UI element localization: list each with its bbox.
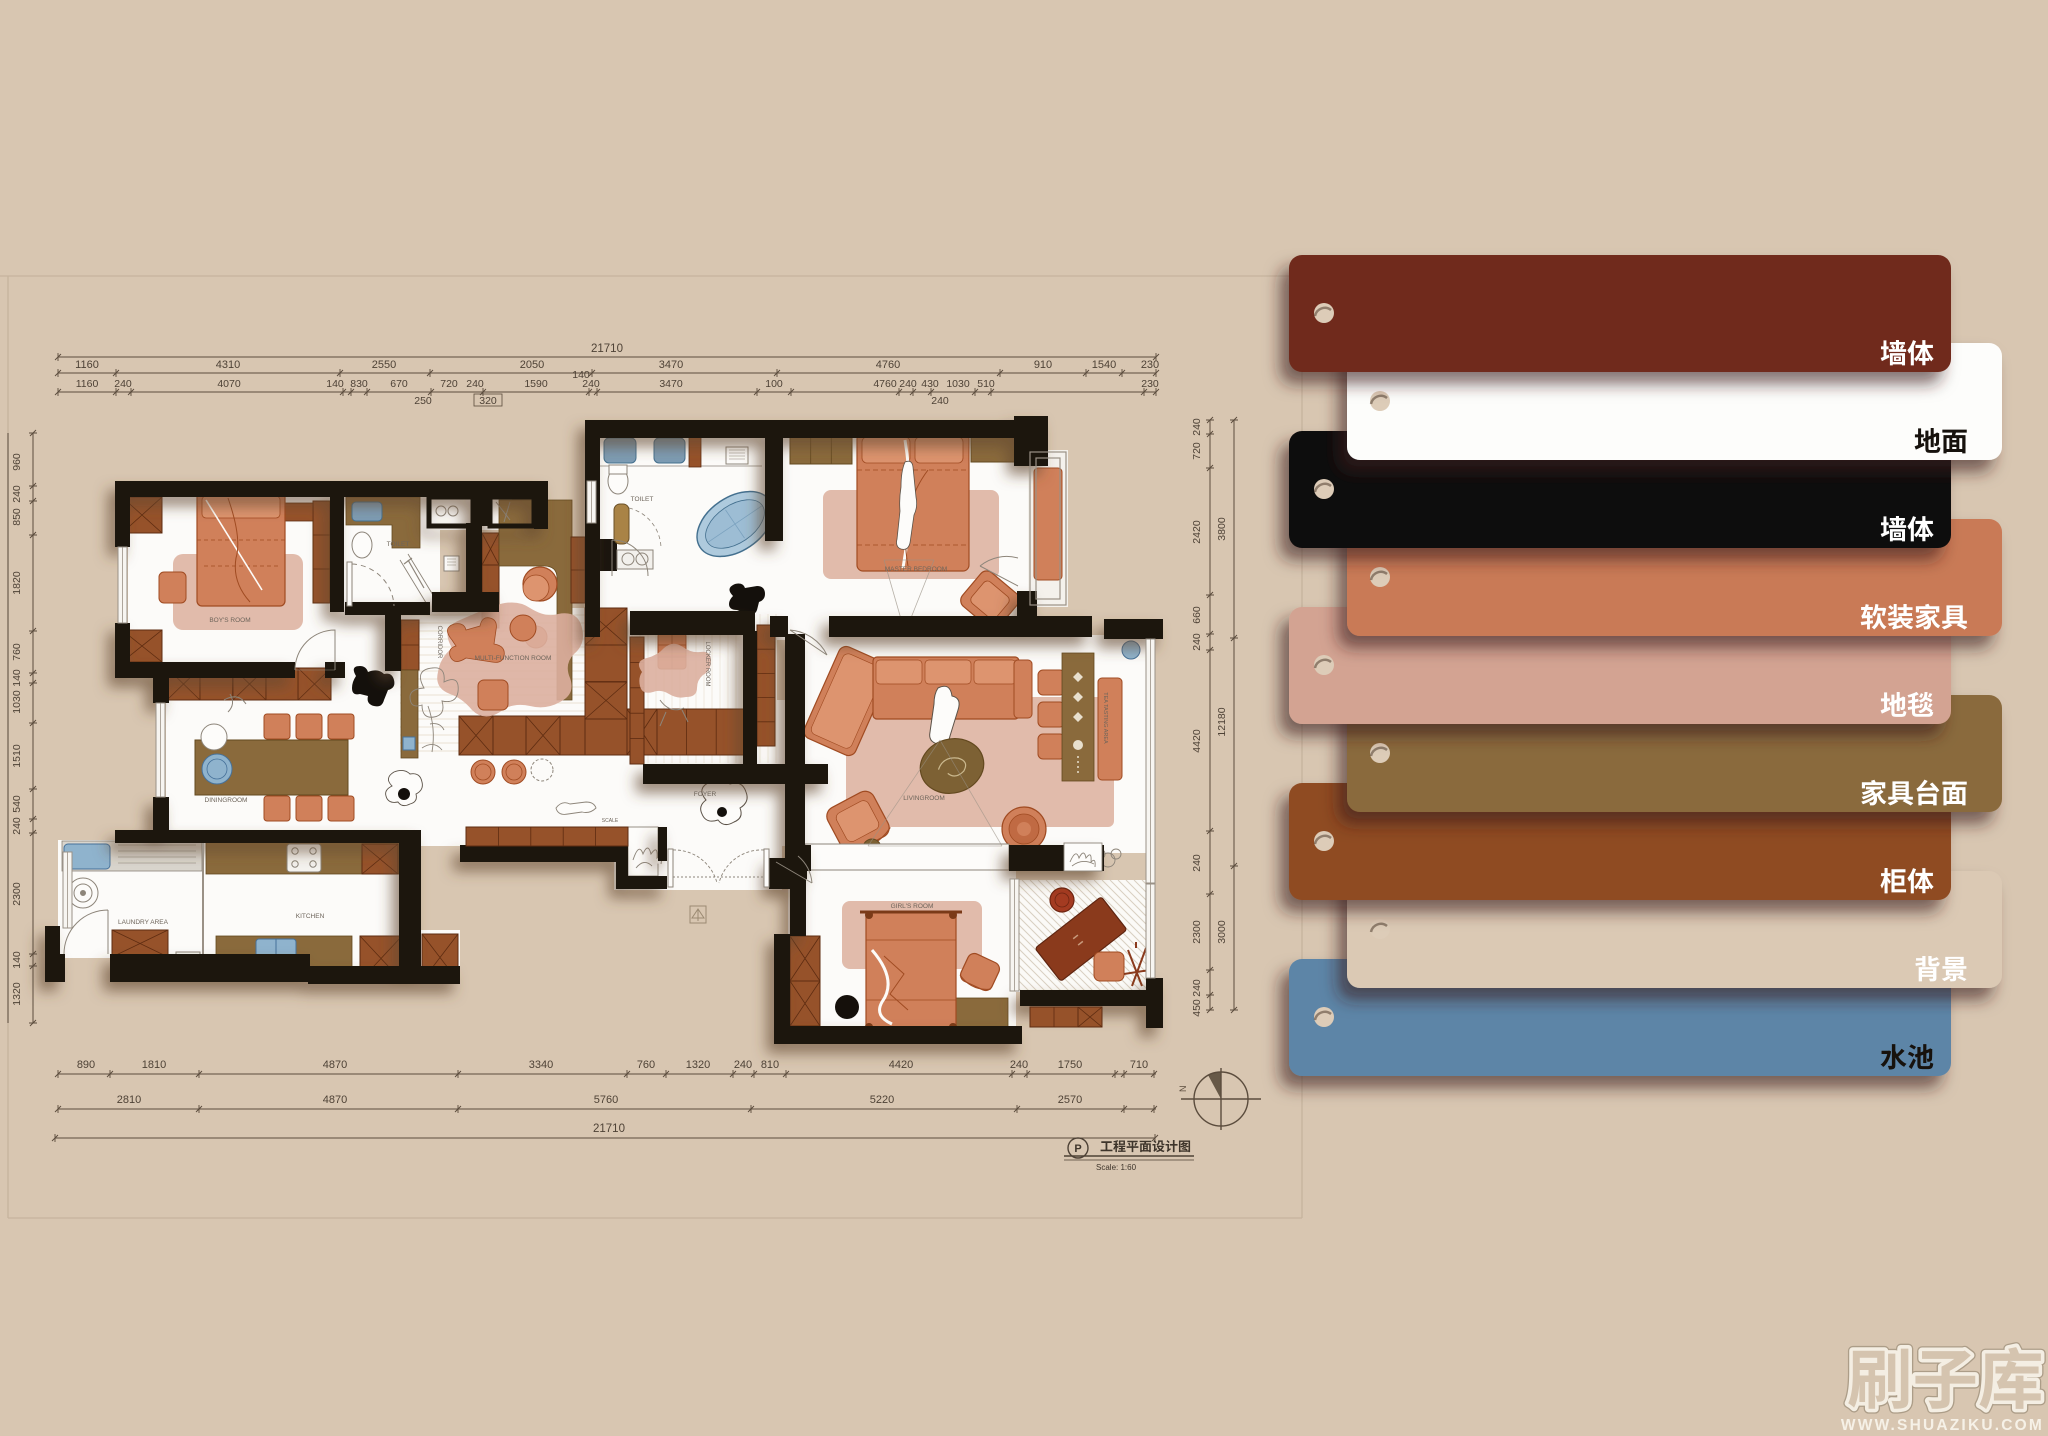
svg-text:240: 240 bbox=[466, 378, 484, 390]
svg-text:2810: 2810 bbox=[117, 1094, 141, 1106]
svg-text:12180: 12180 bbox=[1216, 707, 1228, 736]
svg-text:240: 240 bbox=[1191, 633, 1203, 651]
svg-text:240: 240 bbox=[1191, 854, 1203, 872]
svg-text:4420: 4420 bbox=[889, 1059, 913, 1071]
svg-text:MASTER BEDROOM: MASTER BEDROOM bbox=[885, 566, 947, 573]
svg-text:1160: 1160 bbox=[75, 359, 99, 371]
svg-text:KITCHEN: KITCHEN bbox=[296, 913, 325, 920]
svg-text:240: 240 bbox=[931, 395, 949, 407]
svg-text:540: 540 bbox=[11, 795, 23, 813]
svg-text:1320: 1320 bbox=[686, 1059, 710, 1071]
svg-text:140: 140 bbox=[572, 369, 590, 381]
svg-text:670: 670 bbox=[390, 378, 408, 390]
svg-text:430: 430 bbox=[921, 378, 939, 390]
svg-text:960: 960 bbox=[11, 453, 23, 471]
svg-text:830: 830 bbox=[350, 378, 368, 390]
svg-text:4760: 4760 bbox=[873, 378, 897, 390]
svg-text:2570: 2570 bbox=[1058, 1094, 1082, 1106]
svg-text:240: 240 bbox=[734, 1059, 752, 1071]
svg-text:1030: 1030 bbox=[11, 690, 23, 714]
svg-text:760: 760 bbox=[637, 1059, 655, 1071]
svg-text:100: 100 bbox=[765, 378, 783, 390]
svg-text:N: N bbox=[1178, 1086, 1188, 1093]
svg-text:320: 320 bbox=[479, 395, 497, 407]
svg-text:850: 850 bbox=[11, 508, 23, 526]
svg-text:1810: 1810 bbox=[142, 1059, 166, 1071]
svg-text:P: P bbox=[1074, 1143, 1081, 1155]
svg-text:Scale: 1:60: Scale: 1:60 bbox=[1096, 1163, 1137, 1172]
svg-text:BOY'S ROOM: BOY'S ROOM bbox=[209, 617, 250, 624]
svg-text:3340: 3340 bbox=[529, 1059, 553, 1071]
svg-text:2420: 2420 bbox=[1191, 520, 1203, 544]
svg-text:4870: 4870 bbox=[323, 1094, 347, 1106]
svg-text:240: 240 bbox=[1010, 1059, 1028, 1071]
svg-text:3000: 3000 bbox=[1216, 920, 1228, 944]
svg-text:5220: 5220 bbox=[870, 1094, 894, 1106]
svg-text:760: 760 bbox=[11, 643, 23, 661]
svg-text:660: 660 bbox=[1191, 606, 1203, 624]
svg-text:240: 240 bbox=[1191, 418, 1203, 436]
svg-text:4870: 4870 bbox=[323, 1059, 347, 1071]
svg-text:240: 240 bbox=[114, 378, 132, 390]
svg-text:1590: 1590 bbox=[524, 378, 548, 390]
svg-text:FOYER: FOYER bbox=[694, 791, 717, 798]
svg-text:2300: 2300 bbox=[1191, 920, 1203, 944]
svg-text:2550: 2550 bbox=[372, 359, 396, 371]
svg-text:240: 240 bbox=[11, 485, 23, 503]
svg-text:810: 810 bbox=[761, 1059, 779, 1071]
svg-text:1320: 1320 bbox=[11, 982, 23, 1006]
svg-text:WWW.SHUAZIKU.COM: WWW.SHUAZIKU.COM bbox=[1841, 1417, 2044, 1434]
svg-text:21710: 21710 bbox=[591, 343, 623, 355]
svg-text:4310: 4310 bbox=[216, 359, 240, 371]
svg-text:240: 240 bbox=[1191, 979, 1203, 997]
svg-text:DININGROOM: DININGROOM bbox=[205, 797, 248, 804]
svg-text:240: 240 bbox=[899, 378, 917, 390]
svg-text:MULTI-FUNCTION ROOM: MULTI-FUNCTION ROOM bbox=[475, 655, 552, 662]
svg-text:1160: 1160 bbox=[76, 378, 99, 390]
svg-text:140: 140 bbox=[326, 378, 344, 390]
svg-text:CORRIDOR: CORRIDOR bbox=[436, 626, 442, 659]
svg-text:1030: 1030 bbox=[946, 378, 970, 390]
svg-text:230: 230 bbox=[1141, 359, 1159, 371]
svg-text:1510: 1510 bbox=[11, 744, 23, 768]
svg-text:230: 230 bbox=[1141, 378, 1159, 390]
svg-text:140: 140 bbox=[11, 669, 23, 687]
svg-text:2050: 2050 bbox=[520, 359, 544, 371]
svg-text:4760: 4760 bbox=[876, 359, 900, 371]
svg-text:21710: 21710 bbox=[593, 1123, 625, 1135]
svg-text:2300: 2300 bbox=[11, 882, 23, 906]
svg-text:450: 450 bbox=[1191, 999, 1203, 1017]
svg-text:5760: 5760 bbox=[594, 1094, 618, 1106]
svg-text:250: 250 bbox=[414, 395, 432, 407]
svg-text:1540: 1540 bbox=[1092, 359, 1116, 371]
svg-text:GIRL'S ROOM: GIRL'S ROOM bbox=[891, 903, 934, 910]
svg-text:TEA TASTING AREA: TEA TASTING AREA bbox=[1102, 692, 1108, 744]
svg-text:1750: 1750 bbox=[1058, 1059, 1082, 1071]
svg-text:SCALE: SCALE bbox=[602, 818, 619, 824]
svg-text:TOILET: TOILET bbox=[631, 496, 654, 503]
svg-text:890: 890 bbox=[77, 1059, 95, 1071]
svg-text:710: 710 bbox=[1130, 1059, 1148, 1071]
svg-text:720: 720 bbox=[1191, 442, 1203, 460]
svg-text:140: 140 bbox=[11, 951, 23, 969]
svg-text:LOCKER ROOM: LOCKER ROOM bbox=[704, 641, 710, 686]
svg-text:1820: 1820 bbox=[11, 571, 23, 595]
svg-text:TOILET: TOILET bbox=[387, 541, 410, 548]
svg-text:3800: 3800 bbox=[1216, 517, 1228, 541]
svg-text:LAUNDRY AREA: LAUNDRY AREA bbox=[118, 919, 169, 926]
svg-text:LIVINGROOM: LIVINGROOM bbox=[903, 795, 945, 802]
svg-text:910: 910 bbox=[1034, 359, 1052, 371]
svg-text:3470: 3470 bbox=[659, 359, 683, 371]
svg-text:4420: 4420 bbox=[1191, 729, 1203, 753]
svg-text:720: 720 bbox=[440, 378, 458, 390]
svg-text:4070: 4070 bbox=[217, 378, 241, 390]
svg-text:510: 510 bbox=[977, 378, 995, 390]
svg-text:240: 240 bbox=[11, 817, 23, 835]
svg-text:3470: 3470 bbox=[659, 378, 683, 390]
